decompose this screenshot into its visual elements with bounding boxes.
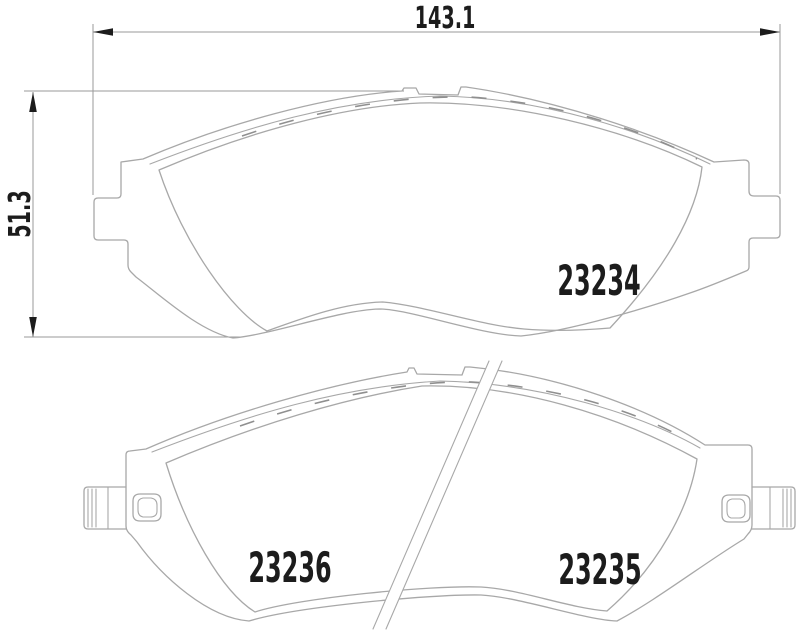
part-number-bottom-pad-right: 23235 — [558, 549, 641, 591]
top-pad — [94, 87, 780, 338]
left-clip-ridges — [88, 487, 108, 529]
width-dimension-value: 143.1 — [415, 4, 476, 34]
part-number-bottom-pad-left: 23236 — [248, 547, 331, 589]
top-pad-backplate-outline — [94, 87, 780, 338]
right-hole-inner — [727, 499, 745, 518]
bottom-pad-plate-edge-line — [152, 381, 700, 452]
height-dimension — [24, 91, 404, 337]
arrowhead-down — [29, 317, 37, 337]
height-dimension-value: 51.3 — [6, 190, 36, 237]
arrowhead-up — [29, 92, 37, 112]
part-number-top-pad: 23234 — [557, 260, 640, 302]
arrowhead-right — [760, 28, 780, 36]
right-clip-outline — [752, 487, 795, 529]
technical-drawing: 143.1 51.3 23234 23236 23235 — [0, 0, 800, 631]
left-clip-outline — [84, 487, 126, 529]
drawing-linework — [0, 0, 800, 631]
left-hole-inner — [138, 498, 157, 517]
bottom-pad — [84, 361, 795, 629]
arrowhead-left — [93, 28, 113, 36]
top-pad-plate-edge-line — [150, 96, 710, 164]
right-clip-ridges — [770, 487, 791, 529]
separator-band-fill — [373, 361, 502, 629]
width-dimension — [93, 24, 780, 195]
